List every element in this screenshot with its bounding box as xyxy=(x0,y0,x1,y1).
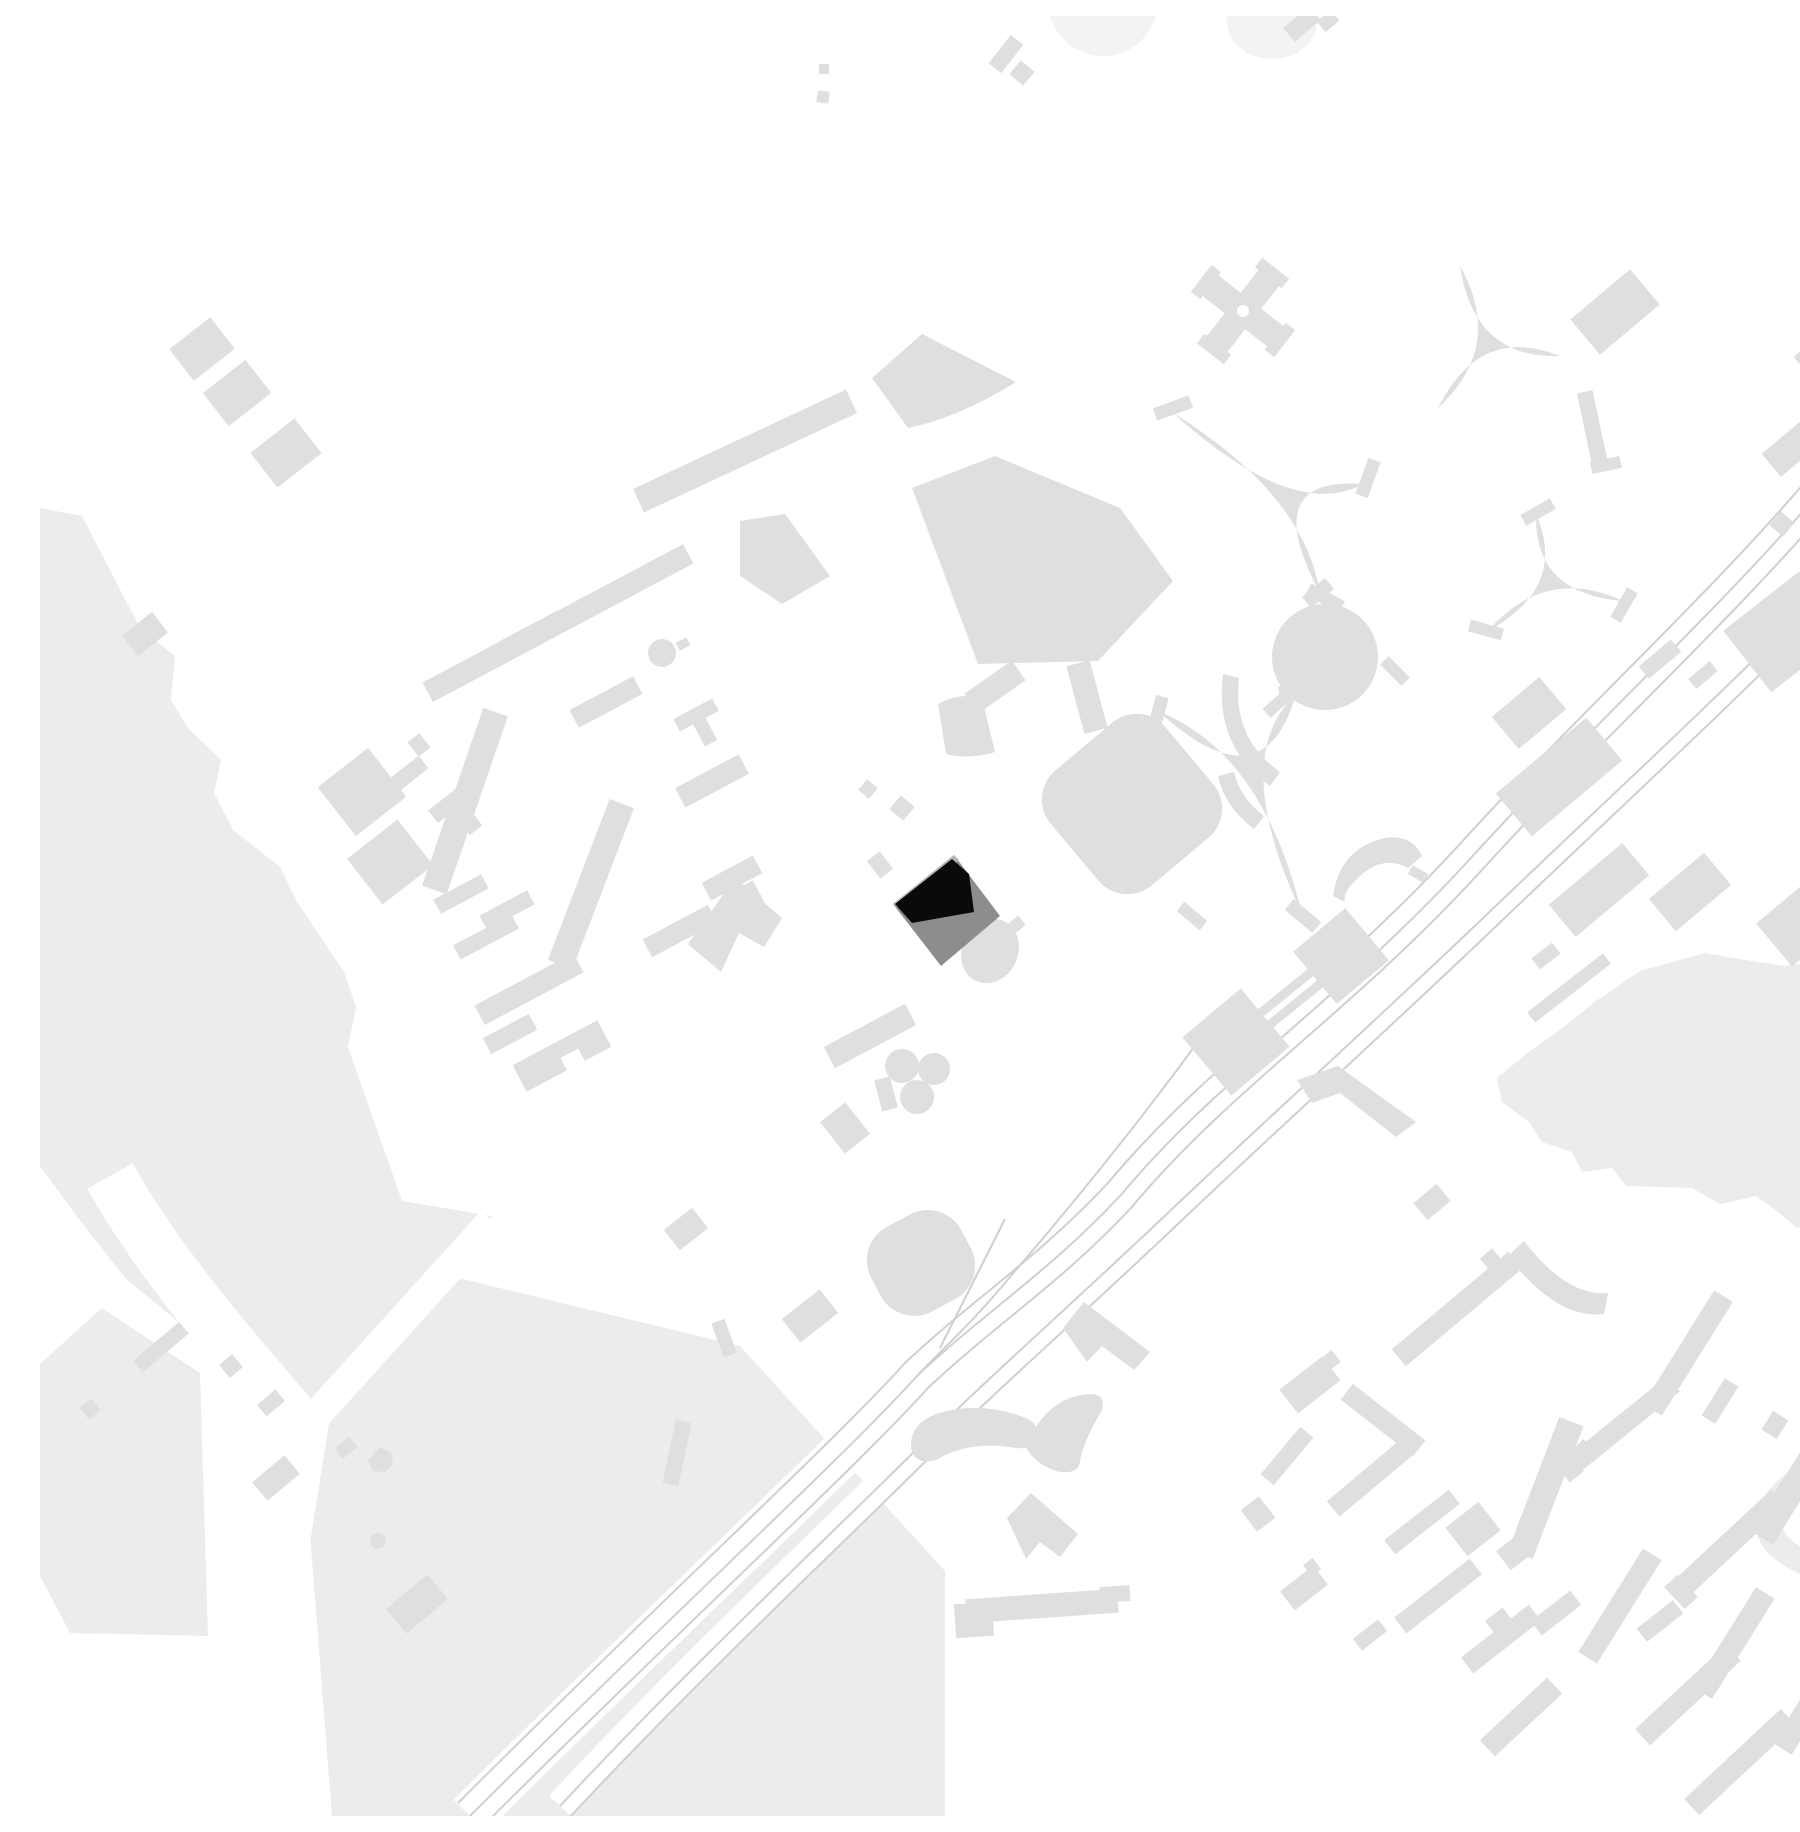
layer-buildings-shape xyxy=(1445,1502,1500,1556)
layer-buildings-shape xyxy=(648,639,676,667)
layer-buildings-shape xyxy=(872,334,1016,428)
layer-buildings-shape xyxy=(1794,328,1800,393)
layer-buildings-shape xyxy=(1762,1411,1789,1439)
layer-buildings-shape xyxy=(1355,458,1380,498)
layer-buildings-shape xyxy=(1488,514,1623,631)
layer-buildings-shape xyxy=(900,1080,934,1114)
layer-buildings-shape xyxy=(1684,1709,1796,1815)
layer-buildings-shape xyxy=(1531,1591,1581,1636)
layer-buildings-shape xyxy=(1177,902,1208,930)
layer-buildings-shape xyxy=(782,1289,838,1342)
layer-buildings-shape xyxy=(1578,1548,1661,1663)
layer-buildings-shape xyxy=(867,851,893,878)
layer-buildings-shape xyxy=(1063,1302,1150,1370)
layer-buildings-shape xyxy=(1099,1585,1130,1603)
layer-buildings-shape xyxy=(250,418,321,487)
layer-buildings-shape xyxy=(1026,698,1237,909)
layer-buildings-shape xyxy=(370,1533,386,1549)
layer-terrain-light-shape xyxy=(1048,16,1158,56)
layer-terrain-shape xyxy=(1497,953,1800,1228)
layer-buildings-shape xyxy=(1317,16,1340,32)
layer-buildings-shape xyxy=(1702,1378,1739,1424)
layer-buildings-shape xyxy=(386,756,429,794)
layer-buildings-shape xyxy=(1241,1496,1276,1531)
layer-buildings-shape xyxy=(1009,60,1034,85)
layer-buildings-shape xyxy=(1272,604,1378,710)
layer-buildings-shape xyxy=(1384,1490,1460,1555)
layer-buildings-shape xyxy=(1570,269,1659,354)
layer-buildings-shape xyxy=(1025,1394,1103,1472)
layer-buildings-shape xyxy=(918,1053,950,1085)
layer-buildings-shape xyxy=(885,1049,919,1083)
layer-buildings-shape xyxy=(1007,1493,1078,1559)
layer-buildings-shape xyxy=(1261,1427,1314,1485)
layer-white-holes-shape xyxy=(1237,305,1249,317)
layer-buildings-shape xyxy=(1438,266,1560,408)
layer-buildings-shape xyxy=(1531,942,1560,969)
layer-buildings-shape xyxy=(858,779,878,799)
layer-buildings-shape xyxy=(1394,1559,1482,1634)
layer-buildings-shape xyxy=(1649,853,1731,931)
layer-buildings-shape xyxy=(688,878,782,972)
layer-buildings-shape xyxy=(1762,419,1800,477)
site-plan-figure xyxy=(40,16,1800,1816)
layer-buildings-shape xyxy=(408,733,431,756)
layer-terrain-shape xyxy=(40,1308,208,1636)
layer-buildings-shape xyxy=(691,713,717,746)
layer-buildings-shape xyxy=(1693,1587,1774,1699)
layer-buildings-shape xyxy=(1637,1600,1684,1642)
layer-buildings-shape xyxy=(633,390,857,513)
layer-buildings-shape xyxy=(1285,899,1322,933)
layer-buildings-shape xyxy=(1392,1252,1523,1367)
layer-buildings-shape xyxy=(1341,1384,1426,1456)
layer-buildings-shape xyxy=(203,360,271,426)
layer-buildings-shape xyxy=(740,514,830,604)
layer-buildings-shape xyxy=(1508,1241,1608,1315)
layer-buildings-shape xyxy=(912,456,1173,664)
layer-buildings-shape xyxy=(820,1102,870,1153)
layer-buildings-shape xyxy=(874,1076,898,1111)
map-canvas xyxy=(40,16,1800,1816)
layer-buildings-shape xyxy=(1147,695,1168,731)
layer-buildings-shape xyxy=(676,637,691,651)
layer-buildings-shape xyxy=(1756,873,1800,966)
layer-buildings-shape xyxy=(1153,395,1193,420)
layer-buildings-shape xyxy=(816,90,830,104)
layer-buildings-shape xyxy=(1610,587,1637,622)
layer-buildings-shape xyxy=(1413,1184,1450,1220)
layer-buildings-shape xyxy=(889,795,914,820)
layer-buildings-shape xyxy=(1222,674,1280,786)
layer-buildings-shape xyxy=(1380,656,1410,686)
layer-terrain-light xyxy=(1048,16,1317,59)
layer-buildings-shape xyxy=(1480,1678,1562,1757)
layer-buildings-shape xyxy=(570,676,643,727)
layer-buildings-shape xyxy=(1280,1566,1328,1611)
layer-buildings-shape xyxy=(819,64,829,74)
layer-site-building-shape xyxy=(895,859,974,923)
layer-buildings-shape xyxy=(1173,413,1363,593)
layer-buildings-shape xyxy=(675,754,749,807)
layer-buildings-shape xyxy=(1297,1066,1416,1137)
layer-buildings-shape xyxy=(548,799,634,969)
layer-buildings-shape xyxy=(954,1602,994,1639)
layer-buildings-shape xyxy=(1353,1619,1387,1651)
layer-buildings-shape xyxy=(1327,1439,1413,1516)
layer-buildings-shape xyxy=(664,1208,708,1251)
layer-buildings-shape xyxy=(1066,660,1107,734)
layer-buildings-shape xyxy=(169,317,235,381)
